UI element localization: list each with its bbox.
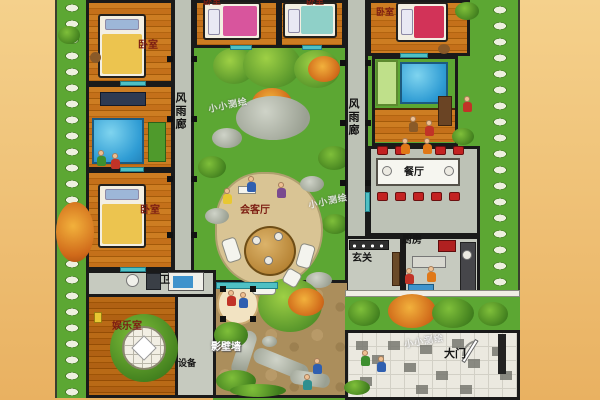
person-figure [312,358,322,374]
stove [438,240,456,252]
gate-pier [498,334,506,374]
cabinet [376,60,398,106]
label-bedroom-northeast: 卧室 [376,9,394,18]
person-figure [408,116,418,132]
label-dining: 餐厅 [404,168,424,178]
toilet [146,273,161,290]
person-figure [360,350,370,366]
label-bedroom-northwest: 卧室 [138,41,158,51]
shoe-cabinet [349,240,389,250]
autumn-tree [288,288,324,316]
label-equipment: 设备 [178,360,196,369]
bush [455,2,479,20]
vanity-sink [126,274,139,287]
bush [198,156,226,178]
bench [438,96,452,126]
bench [100,92,146,106]
label-games: 娱乐室 [112,322,142,332]
bush [58,26,80,44]
bedside-stool [438,44,450,54]
bed [396,2,448,42]
label-corridor-east: 风雨廊 [348,98,359,137]
autumn-tree [308,56,340,82]
bedside-stool [90,52,101,63]
label-gate: 大门 [444,348,466,359]
person-figure [376,356,386,372]
label-kitchen: 厨房 [402,236,422,246]
person-figure [226,290,236,306]
label-bedroom-north1: 卧室 [203,0,221,7]
person-figure [222,188,232,204]
label-bedroom-west: 卧室 [140,206,160,216]
corridor-west [172,0,194,270]
label-reception: 会客厅 [240,206,270,216]
person-figure [400,138,410,154]
person-figure [422,138,432,154]
rockery [212,128,242,148]
person-figure [404,268,414,284]
stone-table [262,336,277,347]
bush [452,128,474,145]
person-figure [276,182,286,198]
garden-wall [345,290,520,297]
right-lawn-stepping-stones [486,2,516,332]
person-figure [238,292,248,308]
person-figure [246,176,256,192]
label-screen-wall: 影壁墙 [211,343,241,353]
room-equipment [175,297,213,395]
mat [148,122,166,162]
person-figure [426,266,436,282]
bed [98,184,146,248]
person-figure [462,96,472,112]
person-figure [96,150,106,166]
person-figure [302,374,312,390]
person-figure [424,120,434,136]
bed [203,2,261,40]
cushion [94,312,102,323]
label-entry: 玄关 [352,254,372,264]
label-bedroom-north2: 卧室 [306,0,324,7]
courtyard-floor-plan-illustration: 卧室 卧室 卧室 卧室 卧室 风雨廊 风雨廊 会客厅 餐厅 厨房 玄关 卫 娱乐… [0,0,600,400]
washer [168,272,204,291]
left-lawn-stepping-stones [55,0,88,398]
autumn-tree [56,202,94,262]
entry-bench [392,252,400,286]
person-figure [110,153,120,169]
bed [283,2,337,38]
label-bath: 卫 [160,276,170,286]
label-corridor-west: 风雨廊 [175,92,186,131]
